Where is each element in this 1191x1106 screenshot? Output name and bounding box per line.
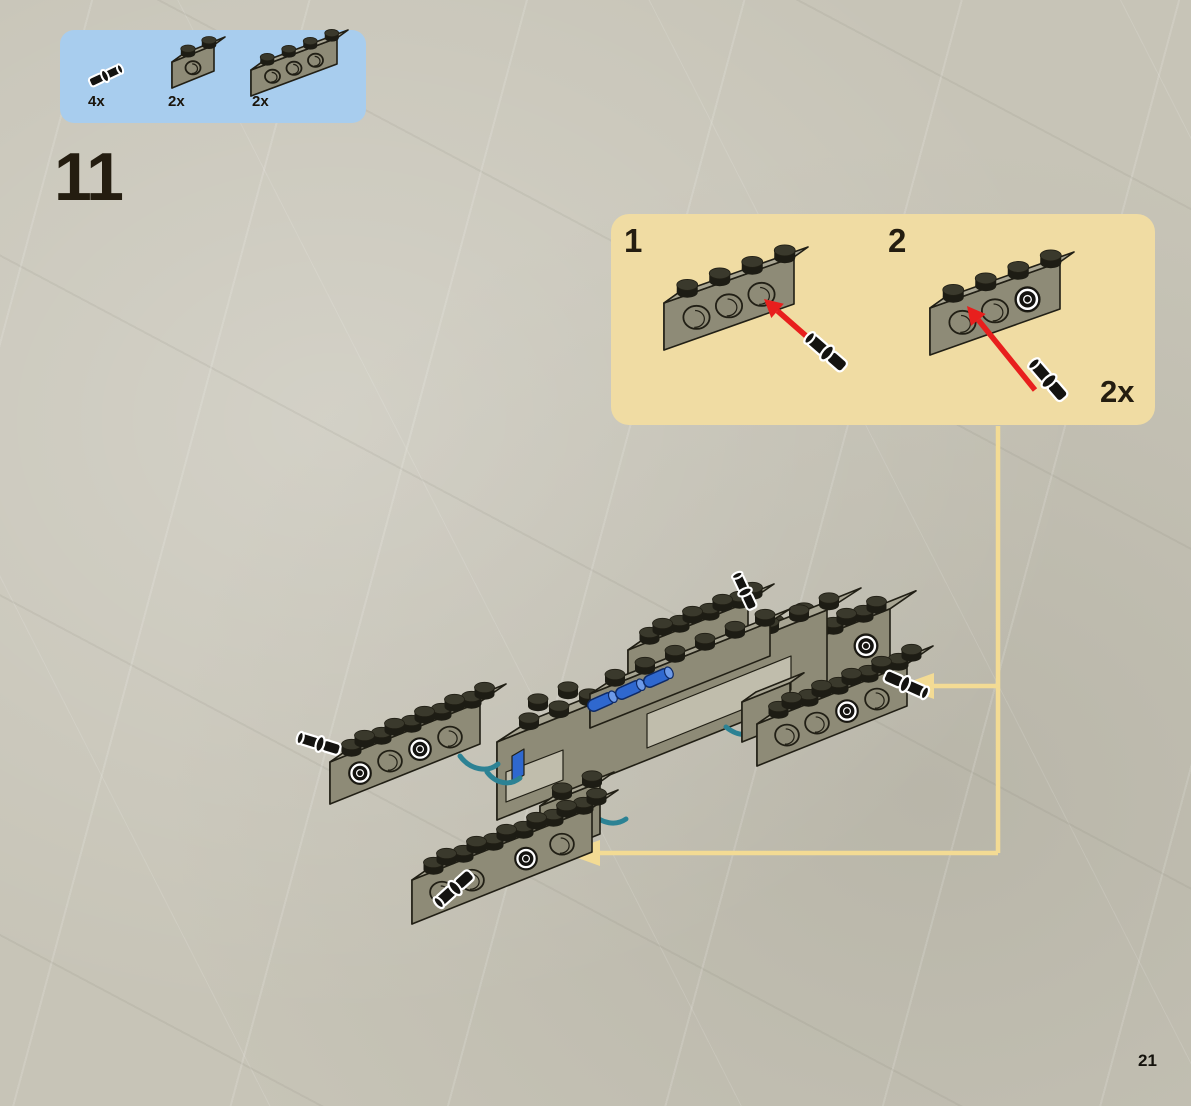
main-model <box>295 570 933 924</box>
part-quantity-label: 4x <box>88 93 105 110</box>
callout-quantity-label: 2x <box>1100 374 1134 410</box>
model-hoses <box>460 727 762 823</box>
model-arm-left <box>295 682 506 804</box>
page-number: 21 <box>1138 1051 1157 1071</box>
model-arm-bottom <box>412 788 618 924</box>
model-body <box>497 588 861 820</box>
part-quantity-label: 2x <box>168 93 185 110</box>
illustration-layer <box>0 0 1191 1106</box>
model-arm-top-right <box>628 570 826 706</box>
step-number: 11 <box>54 138 122 216</box>
substep-2-label: 2 <box>888 222 906 260</box>
substeps-callout-box <box>611 214 1155 425</box>
model-front-column <box>540 771 614 858</box>
substep-1-label: 1 <box>624 222 642 260</box>
model-blue-pins <box>512 666 675 782</box>
parts-callout-box <box>60 30 366 123</box>
model-rear-right-column <box>812 591 916 690</box>
instruction-page: 4x 2x 2x 11 1 2 2x 21 <box>0 0 1191 1106</box>
part-quantity-label: 2x <box>252 93 269 110</box>
callout-connector-lines <box>564 426 998 866</box>
model-arm-right <box>742 644 933 766</box>
